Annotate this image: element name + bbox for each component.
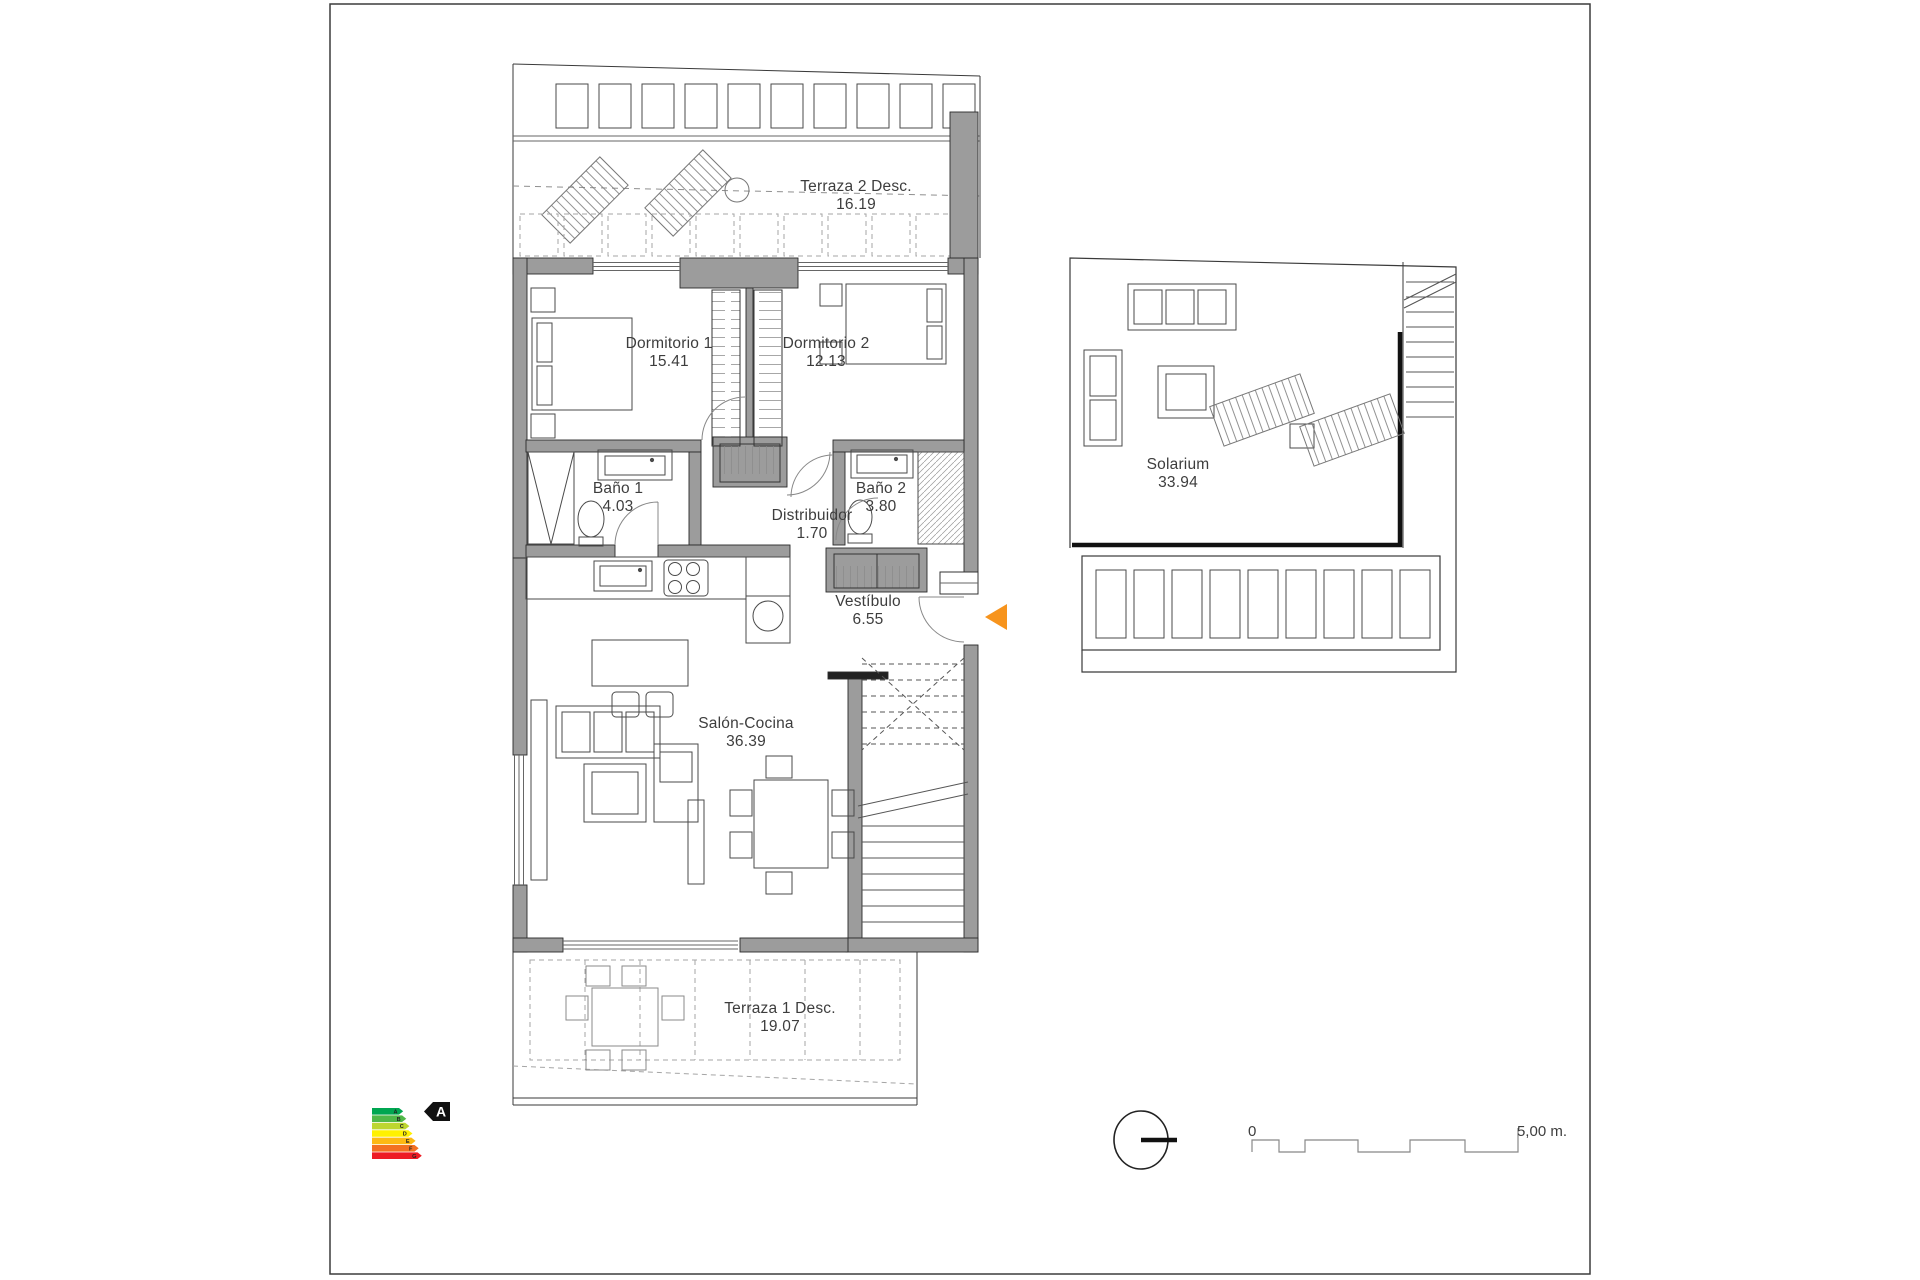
scale-start-label: 0 [1248, 1123, 1256, 1140]
living-furniture [531, 700, 704, 884]
pillow [537, 366, 552, 405]
room-name: Baño 1 [593, 480, 643, 498]
floorplan-sheet: ABCDEFG A 0 5,00 m. Terraza 2 Desc. 16.1… [0, 0, 1920, 1280]
energy-rating-label: ABCDEFG A [372, 1102, 450, 1160]
terrace-dining-set [566, 966, 684, 1070]
oven [753, 601, 783, 631]
nightstand [531, 288, 555, 312]
sun-lounger [542, 157, 628, 243]
energy-band-c [372, 1123, 409, 1130]
room-name: Baño 2 [856, 480, 906, 498]
sofa [1128, 284, 1236, 330]
room-area: 1.70 [797, 525, 828, 543]
energy-rating-badge: A [424, 1102, 450, 1121]
kitchen-furniture [526, 557, 790, 717]
energy-band-b [372, 1115, 406, 1122]
scale-end-label: 5,00 m. [1517, 1123, 1567, 1140]
door-bano2 [791, 455, 833, 497]
terraza1-plan [513, 952, 917, 1105]
dining-furniture [730, 756, 854, 894]
room-name: Dormitorio 1 [626, 335, 713, 353]
room-name: Distribuidor [772, 507, 853, 525]
room-area: 33.94 [1158, 474, 1198, 492]
sun-lounger [1300, 394, 1405, 466]
room-label-salon-cocina: Salón-Cocina 36.39 [698, 715, 793, 751]
room-label-terraza-1: Terraza 1 Desc. 19.07 [724, 1000, 836, 1036]
energy-band-letter: D [403, 1132, 407, 1138]
room-label-distribuidor: Distribuidor 1.70 [772, 507, 853, 543]
room-label-bano-2: Baño 2 3.80 [856, 480, 906, 516]
shower-tray [528, 452, 574, 544]
energy-rating-letter: A [436, 1104, 446, 1120]
room-area: 16.19 [836, 196, 876, 214]
bed [532, 318, 632, 410]
room-area: 19.07 [760, 1018, 800, 1036]
energy-band-a [372, 1108, 403, 1115]
chair [730, 832, 752, 858]
closet-dormitorio-2 [754, 290, 782, 446]
energy-band-letter: F [409, 1146, 413, 1152]
energy-band-letter: G [412, 1154, 416, 1160]
room-area: 6.55 [853, 611, 884, 629]
chair [766, 756, 792, 778]
room-area: 12.13 [806, 353, 846, 371]
room-name: Vestíbulo [835, 593, 901, 611]
armchair [654, 744, 698, 822]
coffee-table [584, 764, 646, 822]
room-area: 3.80 [866, 498, 897, 516]
sink [851, 450, 913, 478]
shower-tray [918, 452, 964, 544]
room-name: Salón-Cocina [698, 715, 793, 733]
room-area: 4.03 [603, 498, 634, 516]
dining-table [754, 780, 828, 868]
nightstand [820, 284, 842, 306]
room-name: Terraza 1 Desc. [724, 1000, 836, 1018]
door-entrance [919, 597, 964, 642]
nightstand [531, 414, 555, 438]
chair [766, 872, 792, 894]
closet-dormitorio-1 [712, 290, 740, 446]
energy-band-letter: A [394, 1109, 398, 1115]
sun-lounger [1210, 374, 1315, 446]
terraza2-plan [513, 64, 980, 258]
room-label-bano-1: Baño 1 4.03 [593, 480, 643, 516]
sideboard [531, 700, 547, 880]
terrace-table-round [725, 178, 749, 202]
pillow [927, 326, 942, 359]
energy-band-letter: B [397, 1117, 401, 1123]
pergola-slats-top [556, 84, 975, 128]
chair [730, 790, 752, 816]
sun-lounger [645, 150, 731, 236]
room-name: Terraza 2 Desc. [800, 178, 912, 196]
room-area: 15.41 [649, 353, 689, 371]
north-compass [1114, 1111, 1177, 1169]
room-label-dormitorio-1: Dormitorio 1 15.41 [626, 335, 713, 371]
tall-unit [746, 557, 790, 643]
solarium-plan [1070, 258, 1456, 672]
stairs-main [858, 658, 968, 922]
sofa [556, 706, 660, 758]
door-dormitorio2 [787, 452, 830, 495]
energy-band-letter: E [406, 1139, 410, 1145]
scale-bar: 0 5,00 m. [1248, 1123, 1567, 1152]
room-name: Solarium [1147, 456, 1210, 474]
room-label-dormitorio-2: Dormitorio 2 12.13 [783, 335, 870, 371]
room-area: 36.39 [726, 733, 766, 751]
room-label-vestibulo: Vestíbulo 6.55 [835, 593, 901, 629]
tv-unit [688, 800, 704, 884]
floorplan-drawing: ABCDEFG A 0 5,00 m. [0, 0, 1920, 1280]
pergola-slats-solarium [1096, 570, 1430, 638]
hob [664, 560, 708, 596]
kitchen-counter [526, 557, 746, 599]
closet-distribuidor [720, 444, 780, 482]
pillow [537, 323, 552, 362]
energy-band-letter: C [400, 1124, 404, 1130]
kitchen-island [592, 640, 688, 686]
room-label-terraza-2: Terraza 2 Desc. 16.19 [800, 178, 912, 214]
pillow [927, 289, 942, 322]
stairs-solarium [1404, 274, 1456, 417]
dormitorio1-furniture [531, 288, 632, 438]
energy-bands: ABCDEFG [372, 1108, 422, 1160]
entrance-arrow [985, 604, 1007, 630]
room-label-solarium: Solarium 33.94 [1147, 456, 1210, 492]
room-name: Dormitorio 2 [783, 335, 870, 353]
